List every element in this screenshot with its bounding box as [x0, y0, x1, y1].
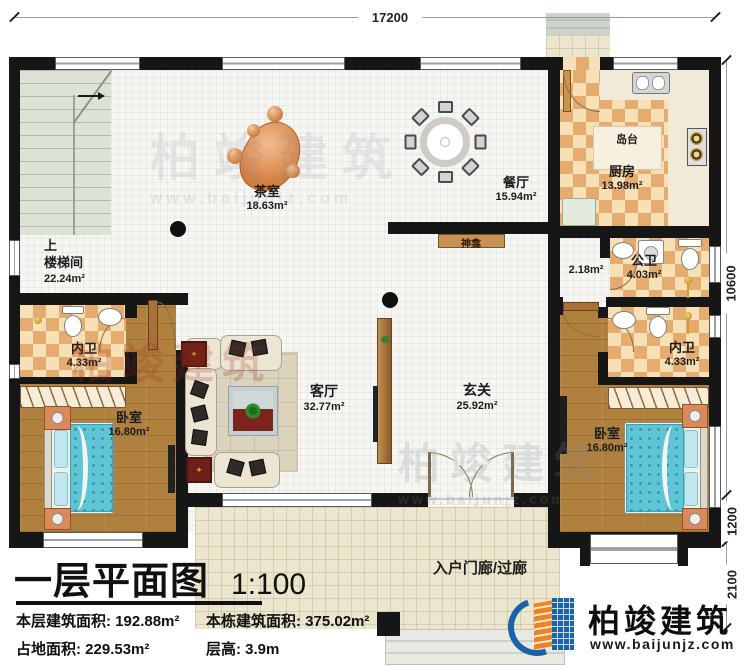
room-label-bedroom-left: 卧室 16.80m² [109, 410, 150, 439]
wall-hook [34, 316, 42, 324]
toilet-bowl [681, 248, 699, 270]
room-name: 餐厅 [496, 175, 537, 191]
stair-up: 上 [44, 238, 85, 255]
window [709, 315, 721, 338]
stat-floor-area: 本层建筑面积: 192.88m² [16, 610, 179, 631]
nightstand [682, 404, 708, 428]
window [55, 57, 140, 70]
hob-burner [690, 132, 703, 145]
stat-footprint-area: 占地面积: 229.53m² [16, 638, 149, 659]
window [420, 57, 521, 70]
brand-logo: 柏竣建筑 www.baijunjz.com [500, 590, 748, 664]
room-area: 32.77m² [304, 401, 345, 414]
room-name: 卧室 [109, 410, 150, 426]
bay-window-jamb [580, 532, 590, 566]
room-name: 楼梯间 [44, 255, 85, 272]
stair-arrow-head [98, 92, 105, 100]
bed-headboard [44, 422, 52, 514]
wall-living-south-a [188, 493, 222, 507]
plan-scale: 1:100 [231, 568, 306, 602]
window [43, 532, 143, 548]
wall-pubbath-south [606, 297, 721, 307]
kitchen-sink-basin [652, 76, 665, 90]
room-area: 2.18m² [569, 264, 604, 277]
room-area: 4.33m² [665, 356, 700, 369]
room-label-dining: 餐厅 15.94m² [496, 175, 537, 204]
room-name: 岛台 [616, 134, 638, 147]
room-area: 4.03m² [627, 269, 662, 282]
room-name: 内卫 [665, 340, 700, 356]
nightstand [44, 406, 71, 430]
room-label-stair: 上 楼梯间 22.24m² [44, 238, 85, 286]
dimension-right-bay: 1200 [725, 502, 740, 542]
stair-arrow [78, 95, 98, 97]
room-area: 13.98m² [602, 180, 643, 193]
column-dot [170, 221, 186, 237]
wall-bathright-west-a [598, 307, 608, 318]
door-leaf [563, 302, 599, 311]
shower-head [684, 312, 692, 320]
room-label-island: 岛台 [616, 134, 638, 147]
wall-bedleft-east-a [176, 293, 188, 305]
bed-pillow [684, 472, 698, 506]
watermark-center: 柏竣建筑 www.baijunjz.com [150, 118, 406, 208]
window [222, 57, 345, 70]
dimension-right-total: 10600 [724, 254, 739, 314]
watermark-right: 柏竣建筑 www.baijunjz.com [398, 430, 606, 507]
dimension-top-value: 17200 [358, 10, 422, 25]
window [222, 493, 372, 507]
kitchen-sink-basin [636, 76, 649, 90]
nightstand [44, 508, 71, 530]
room-name: 客厅 [304, 383, 345, 401]
room-name: 入户门廊/过廊 [433, 560, 527, 579]
dining-chair [438, 101, 453, 113]
dining-chair [438, 171, 453, 183]
stat-building-area: 本栋建筑面积: 375.02m² [206, 610, 369, 631]
bay-window [590, 534, 678, 564]
table-plant [244, 402, 262, 420]
side-table: ✦ [186, 457, 212, 483]
wall-bathleft-east-a [125, 305, 137, 318]
partition-decor-leaf [381, 336, 389, 343]
hob-burner [690, 148, 703, 161]
wall-kitchen-west [548, 70, 560, 228]
toilet-bowl [649, 316, 667, 338]
wall-corridor-pubbath [600, 238, 610, 258]
dining-chair [405, 135, 417, 150]
floor-plan-canvas: ✦ ✦ 茶室 18.63m² 餐厅 15.94m² 厨房 13.98m² 岛台 … [0, 0, 750, 667]
room-label-foyer: 玄关 25.92m² [457, 382, 498, 413]
window [709, 246, 721, 283]
bay-window-jamb [678, 532, 688, 566]
tv-screen [373, 386, 378, 442]
bed-blanket-fold [66, 426, 88, 510]
window [613, 57, 678, 70]
room-name: 厨房 [602, 164, 643, 180]
watermark-left-red: 柏竣建筑 [72, 330, 272, 391]
porch-pillar [377, 612, 400, 636]
room-name: 玄关 [457, 382, 498, 400]
window [9, 364, 20, 379]
toilet-tank [646, 307, 670, 315]
toilet-tank [62, 306, 84, 314]
dining-chair [475, 135, 487, 150]
logo-building-blue [552, 598, 574, 650]
shower-head [684, 276, 692, 284]
room-name: 神龛 [461, 235, 481, 250]
room-label-porch: 入户门廊/过廊 [433, 560, 527, 579]
wall-dining-south [388, 222, 560, 234]
window [709, 426, 721, 508]
wall-bathright-south [598, 377, 721, 385]
bed-headboard [700, 422, 708, 514]
room-area: 15.94m² [496, 191, 537, 204]
nightstand [682, 508, 708, 530]
bed-pillow [684, 430, 698, 468]
dimension-line-right [726, 60, 727, 633]
room-label-bath-public: 公卫 4.03m² [627, 253, 662, 282]
room-label-kitchen: 厨房 13.98m² [602, 164, 643, 193]
shower-rail [687, 320, 689, 334]
dining-table-center [440, 137, 450, 147]
room-label-shrine: 神龛 [461, 235, 481, 250]
room-label-bath-right: 内卫 4.33m² [665, 340, 700, 369]
shower-rail [687, 284, 689, 298]
wall-bathright-west-b [598, 352, 608, 379]
page-title: 一层平面图 [14, 550, 209, 605]
room-area: 22.24m² [44, 272, 85, 286]
room-label-living: 客厅 32.77m² [304, 383, 345, 414]
back-steps-landing [546, 35, 610, 57]
stat-floor-height: 层高: 3.9m [206, 638, 279, 659]
sofa-cushion [191, 429, 208, 446]
stair-divider-line [73, 95, 75, 235]
brand-website: www.baijunjz.com [590, 636, 735, 652]
back-door-opening [563, 57, 600, 70]
room-label-hallway: 2.18m² [569, 264, 604, 277]
sink [612, 311, 636, 329]
title-block: 一层平面图 1:100 [14, 550, 434, 605]
sink [98, 308, 122, 326]
sofa-cushion [249, 459, 267, 477]
window [9, 240, 20, 276]
room-area: 16.80m² [109, 426, 150, 439]
column-dot [382, 292, 398, 308]
title-underline [16, 601, 262, 605]
wall-kitchen-south [560, 226, 721, 238]
sofa-bottom [214, 452, 280, 488]
logo-building-orange [534, 600, 552, 649]
room-area: 25.92m² [457, 400, 498, 413]
room-name: 公卫 [627, 253, 662, 269]
bed-blanket-fold [662, 426, 684, 510]
refrigerator [562, 198, 596, 226]
tv-cabinet [168, 445, 175, 493]
toilet-tank [678, 239, 702, 247]
